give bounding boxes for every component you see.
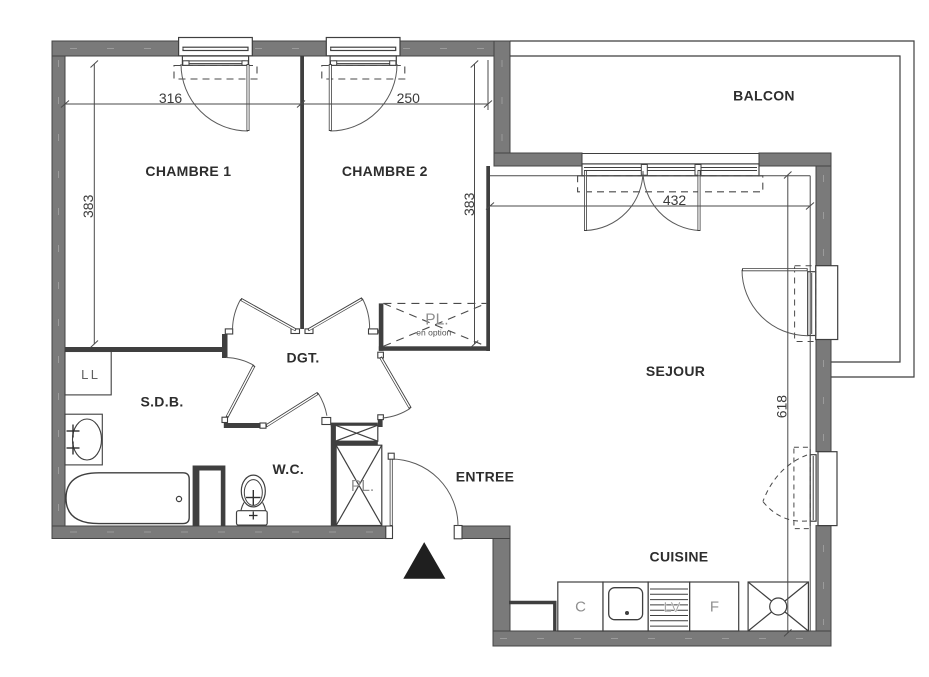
svg-text:W.C.: W.C. [273,461,305,477]
svg-text:383: 383 [80,194,96,218]
svg-text:316: 316 [159,90,183,106]
svg-text:LV: LV [663,599,680,616]
svg-text:F: F [710,599,719,616]
svg-text:DGT.: DGT. [286,350,319,366]
svg-text:ENTREE: ENTREE [456,469,515,485]
svg-text:en option: en option [416,328,451,338]
svg-text:383: 383 [461,192,477,216]
svg-text:PL.: PL. [351,478,374,495]
svg-text:CHAMBRE 1: CHAMBRE 1 [145,163,231,179]
svg-text:618: 618 [774,395,790,419]
svg-text:LL: LL [81,367,100,382]
svg-text:PL.: PL. [425,312,448,329]
svg-text:432: 432 [663,192,687,208]
svg-text:250: 250 [397,90,421,106]
svg-text:S.D.B.: S.D.B. [140,393,183,409]
svg-text:BALCON: BALCON [733,88,795,104]
svg-text:CHAMBRE 2: CHAMBRE 2 [342,163,428,179]
svg-text:CUISINE: CUISINE [650,549,709,565]
svg-text:SEJOUR: SEJOUR [646,363,705,379]
svg-text:C: C [575,599,586,616]
